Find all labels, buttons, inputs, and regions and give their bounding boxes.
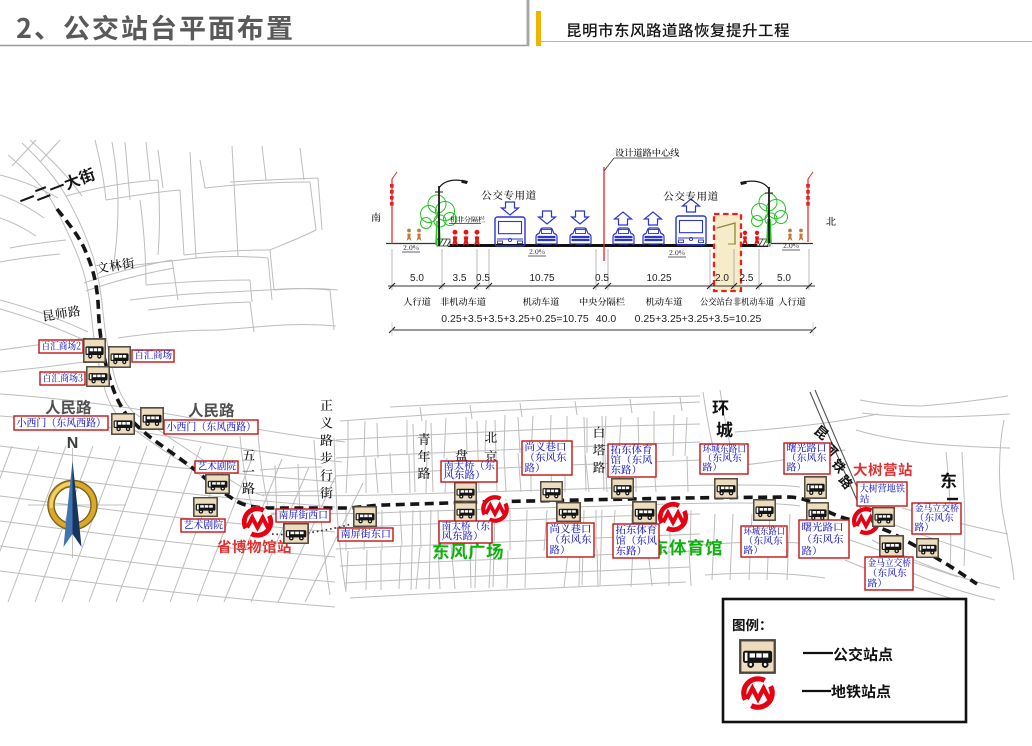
svg-text:40.0: 40.0 <box>596 313 617 325</box>
svg-text:5.0: 5.0 <box>410 273 424 284</box>
svg-text:N: N <box>67 435 79 452</box>
svg-text:2.0: 2.0 <box>715 273 729 284</box>
svg-text:2.5: 2.5 <box>740 273 754 284</box>
svg-text:10.75: 10.75 <box>529 273 554 284</box>
svg-text:0.5: 0.5 <box>476 273 490 284</box>
svg-text:0.25+3.25+3.25+3.5=10.25: 0.25+3.25+3.25+3.5=10.25 <box>635 313 762 325</box>
svg-text:10.25: 10.25 <box>646 273 671 284</box>
svg-text:3.5: 3.5 <box>453 273 467 284</box>
svg-text:0.5: 0.5 <box>595 273 609 284</box>
svg-text:5.0: 5.0 <box>777 273 791 284</box>
svg-text:0.25+3.5+3.5+3.25+0.25=10.75: 0.25+3.5+3.5+3.25+0.25=10.75 <box>441 313 589 325</box>
